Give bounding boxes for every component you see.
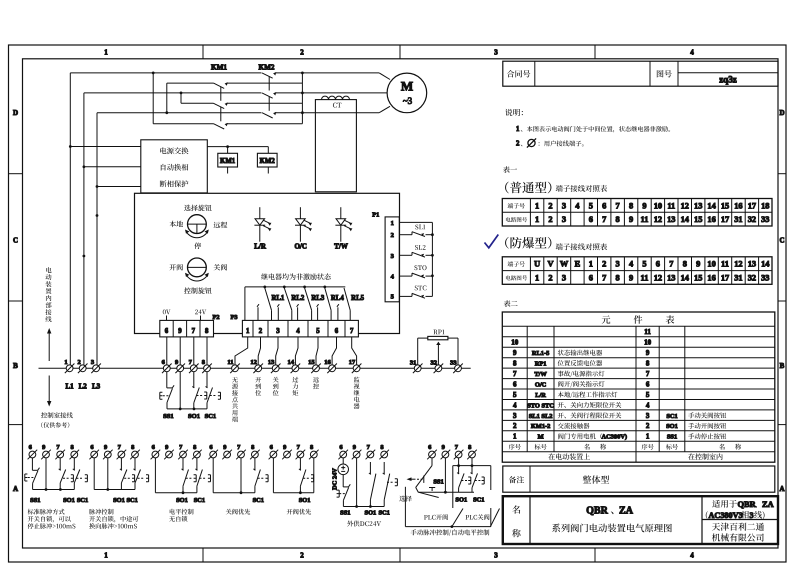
svg-text:2: 2 (259, 328, 263, 335)
svg-text:11: 11 (227, 359, 233, 366)
svg-text:2: 2 (391, 232, 394, 239)
svg-text:QBR: QBR (738, 500, 757, 509)
svg-text:9: 9 (696, 260, 700, 269)
svg-text:16: 16 (734, 201, 742, 210)
svg-text:AC380V): AC380V) (602, 434, 628, 441)
svg-text:KM2: KM2 (259, 64, 275, 72)
svg-text:3: 3 (276, 328, 280, 335)
svg-text:2: 2 (548, 273, 552, 282)
svg-text:9: 9 (629, 215, 633, 224)
svg-text:6: 6 (646, 380, 650, 388)
svg-text:SC1: SC1 (379, 510, 390, 517)
svg-text:SO1: SO1 (63, 497, 75, 504)
svg-text:10: 10 (654, 201, 662, 210)
svg-text:6: 6 (602, 201, 606, 210)
svg-text:KM1-2: KM1-2 (531, 423, 551, 430)
svg-text:5: 5 (589, 201, 593, 210)
svg-text:8: 8 (683, 260, 687, 269)
svg-text:10: 10 (644, 339, 652, 347)
svg-text:SS1: SS1 (163, 413, 173, 420)
svg-text:KM1: KM1 (211, 64, 227, 72)
svg-text:11: 11 (641, 273, 649, 282)
svg-text:SS1: SS1 (667, 434, 677, 441)
svg-text:8: 8 (205, 328, 209, 335)
svg-text:KM2: KM2 (260, 158, 276, 165)
svg-text:AC380V3: AC380V3 (709, 511, 743, 520)
svg-text:RL1-5: RL1-5 (532, 350, 549, 357)
svg-text:5: 5 (513, 391, 517, 399)
svg-text:6: 6 (335, 328, 339, 335)
svg-text:D: D (13, 109, 18, 117)
svg-text:7: 7 (669, 260, 673, 269)
svg-text:W: W (560, 260, 569, 269)
svg-text:U: U (534, 260, 540, 269)
svg-text:T/W: T/W (534, 371, 547, 378)
svg-text:33: 33 (450, 360, 457, 367)
svg-text:15: 15 (694, 273, 702, 282)
svg-text:A: A (779, 485, 784, 493)
svg-text:11: 11 (641, 215, 649, 224)
svg-text:31: 31 (410, 360, 417, 367)
svg-text:8: 8 (616, 273, 620, 282)
svg-text:4: 4 (646, 401, 650, 409)
svg-text:17: 17 (721, 273, 729, 282)
svg-text:SO1: SO1 (188, 413, 200, 420)
svg-text:3: 3 (616, 260, 620, 269)
svg-text:13: 13 (694, 201, 702, 210)
svg-text:8: 8 (513, 360, 517, 368)
svg-text:SC1: SC1 (77, 497, 88, 504)
svg-text:3: 3 (562, 273, 566, 282)
svg-text:B: B (13, 362, 18, 370)
svg-text:SC1: SC1 (205, 413, 217, 420)
svg-text:RL2: RL2 (291, 295, 304, 302)
svg-text:8: 8 (629, 201, 633, 210)
svg-text:13: 13 (667, 215, 675, 224)
svg-text:9: 9 (629, 273, 633, 282)
svg-text:32: 32 (748, 273, 756, 282)
svg-text:2: 2 (646, 422, 650, 430)
svg-text:SC1: SC1 (473, 497, 484, 504)
svg-text:1: 1 (535, 273, 539, 282)
svg-text:32: 32 (748, 215, 756, 224)
svg-text:14: 14 (707, 201, 716, 210)
svg-text:8: 8 (616, 215, 620, 224)
svg-text:3: 3 (562, 215, 566, 224)
svg-text:B: B (780, 362, 785, 370)
svg-text:6: 6 (165, 328, 169, 335)
svg-text:SO1: SO1 (455, 497, 467, 504)
svg-text:31: 31 (734, 273, 742, 282)
svg-text:L2: L2 (79, 383, 88, 391)
svg-text:14: 14 (681, 273, 690, 282)
svg-text:16: 16 (707, 215, 715, 224)
svg-text:KM1: KM1 (220, 158, 236, 165)
svg-text:15: 15 (308, 359, 315, 366)
svg-text:11: 11 (644, 328, 651, 336)
svg-text:DC 24V: DC 24V (332, 468, 339, 490)
svg-text:SC1: SC1 (253, 497, 264, 504)
svg-text:13: 13 (268, 359, 275, 366)
svg-text:SO1: SO1 (299, 497, 311, 504)
svg-text:1: 1 (391, 220, 394, 227)
svg-text:SO1: SO1 (365, 510, 377, 517)
svg-text:1: 1 (589, 260, 593, 269)
svg-text:10: 10 (707, 260, 715, 269)
svg-text:SS1: SS1 (433, 478, 443, 485)
svg-text:11: 11 (667, 201, 675, 210)
svg-text:13: 13 (748, 260, 756, 269)
svg-text:1: 1 (246, 328, 250, 335)
svg-text:SO1: SO1 (666, 423, 678, 430)
svg-text:15: 15 (721, 201, 729, 210)
svg-text:RL1: RL1 (271, 295, 284, 302)
svg-text:M: M (401, 79, 413, 94)
svg-text:7: 7 (646, 370, 650, 378)
svg-text:7: 7 (350, 328, 354, 335)
svg-text:7: 7 (616, 201, 620, 210)
svg-text:9: 9 (642, 201, 646, 210)
svg-text:1: 1 (513, 433, 517, 441)
svg-text:33: 33 (761, 215, 769, 224)
svg-text:2: 2 (602, 260, 606, 269)
svg-text:3: 3 (562, 201, 566, 210)
svg-text:O/C: O/C (535, 381, 547, 388)
svg-text:1: 1 (104, 552, 108, 560)
svg-text:RL4: RL4 (331, 295, 344, 302)
svg-text:QBR: QBR (586, 506, 608, 517)
svg-text:18: 18 (761, 201, 769, 210)
svg-text:4: 4 (690, 49, 694, 57)
svg-text:ZA: ZA (762, 500, 774, 509)
svg-text:12: 12 (734, 260, 742, 269)
svg-text:16: 16 (707, 273, 715, 282)
svg-text:17: 17 (349, 359, 356, 366)
svg-text:12: 12 (681, 201, 689, 210)
svg-text:1: 1 (64, 359, 67, 366)
svg-text:1: 1 (535, 215, 539, 224)
svg-text:3: 3 (494, 49, 498, 57)
svg-text:9: 9 (513, 349, 517, 357)
svg-text:6: 6 (589, 215, 593, 224)
svg-text:SC1: SC1 (127, 497, 138, 504)
svg-text:SO1: SO1 (113, 497, 125, 504)
svg-text:E: E (575, 260, 581, 269)
svg-text:4: 4 (513, 401, 517, 409)
svg-text:RL5: RL5 (351, 295, 364, 302)
svg-text:16: 16 (324, 359, 331, 366)
svg-text:4: 4 (296, 328, 300, 335)
svg-text:14: 14 (681, 215, 690, 224)
svg-text:3: 3 (494, 552, 498, 560)
svg-text:6: 6 (656, 260, 660, 269)
svg-text:7: 7 (602, 273, 606, 282)
svg-text:33: 33 (761, 273, 769, 282)
svg-text:5: 5 (316, 328, 320, 335)
svg-text:15: 15 (694, 215, 702, 224)
svg-text:2: 2 (300, 552, 304, 560)
svg-text:14: 14 (761, 260, 770, 269)
svg-text:17: 17 (748, 201, 756, 210)
svg-text:ZA: ZA (619, 506, 634, 517)
svg-text:L1: L1 (66, 383, 75, 391)
svg-text:SS1: SS1 (340, 510, 350, 517)
svg-text:~3: ~3 (403, 96, 413, 106)
svg-text:M: M (538, 434, 544, 441)
svg-text:5: 5 (642, 260, 646, 269)
svg-text:7: 7 (513, 370, 517, 378)
svg-text:5: 5 (646, 391, 650, 399)
svg-text:SS1: SS1 (30, 497, 40, 504)
svg-text:7: 7 (192, 328, 196, 335)
svg-text:2: 2 (548, 201, 552, 210)
svg-text:2: 2 (516, 141, 520, 148)
svg-text:3: 3 (513, 412, 517, 420)
svg-text:1: 1 (104, 49, 108, 57)
svg-text:P3: P3 (231, 314, 238, 321)
svg-text:12: 12 (654, 215, 662, 224)
svg-text:32: 32 (431, 360, 438, 367)
svg-text:STO STC: STO STC (527, 402, 554, 409)
svg-text:2: 2 (77, 359, 80, 366)
svg-text:4: 4 (690, 552, 694, 560)
svg-text:1: 1 (535, 201, 539, 210)
svg-text:D: D (779, 109, 784, 117)
svg-text:L/R: L/R (535, 392, 546, 399)
svg-text:31: 31 (734, 215, 742, 224)
svg-text:14: 14 (288, 359, 295, 366)
svg-text:10: 10 (511, 339, 519, 347)
svg-text:2: 2 (300, 49, 304, 57)
svg-text:3: 3 (750, 511, 754, 520)
svg-text:7: 7 (602, 215, 606, 224)
svg-text:SC1: SC1 (666, 413, 677, 420)
svg-text:6: 6 (589, 273, 593, 282)
svg-text:2: 2 (548, 215, 552, 224)
svg-text:V: V (547, 260, 553, 269)
svg-text:12: 12 (250, 359, 257, 366)
svg-text:9: 9 (178, 328, 182, 335)
svg-text:RP1: RP1 (535, 361, 547, 368)
svg-text:13: 13 (667, 273, 675, 282)
svg-text:C: C (13, 237, 18, 245)
svg-text:A: A (13, 485, 18, 493)
svg-text:P1: P1 (372, 212, 379, 219)
svg-text:SL1 SL2: SL1 SL2 (529, 413, 553, 420)
svg-text:1: 1 (646, 433, 650, 441)
svg-text:RL3: RL3 (311, 295, 324, 302)
svg-text:9: 9 (646, 349, 650, 357)
svg-text:12: 12 (654, 273, 662, 282)
svg-text:T/W: T/W (334, 243, 348, 251)
svg-text:C: C (779, 237, 784, 245)
svg-text:L3: L3 (92, 383, 101, 391)
svg-text:3: 3 (646, 412, 650, 420)
svg-text:2: 2 (513, 422, 517, 430)
svg-text:8: 8 (646, 360, 650, 368)
svg-text:O/C: O/C (294, 243, 306, 251)
svg-text:zq3z: zq3z (719, 75, 737, 85)
svg-text:6: 6 (513, 380, 517, 388)
svg-text:L/R: L/R (254, 243, 267, 251)
svg-text:11: 11 (721, 260, 729, 269)
svg-text:17: 17 (721, 215, 729, 224)
svg-text:1: 1 (516, 126, 520, 133)
svg-text:SO1: SO1 (176, 497, 188, 504)
svg-text:SC1: SC1 (194, 497, 205, 504)
